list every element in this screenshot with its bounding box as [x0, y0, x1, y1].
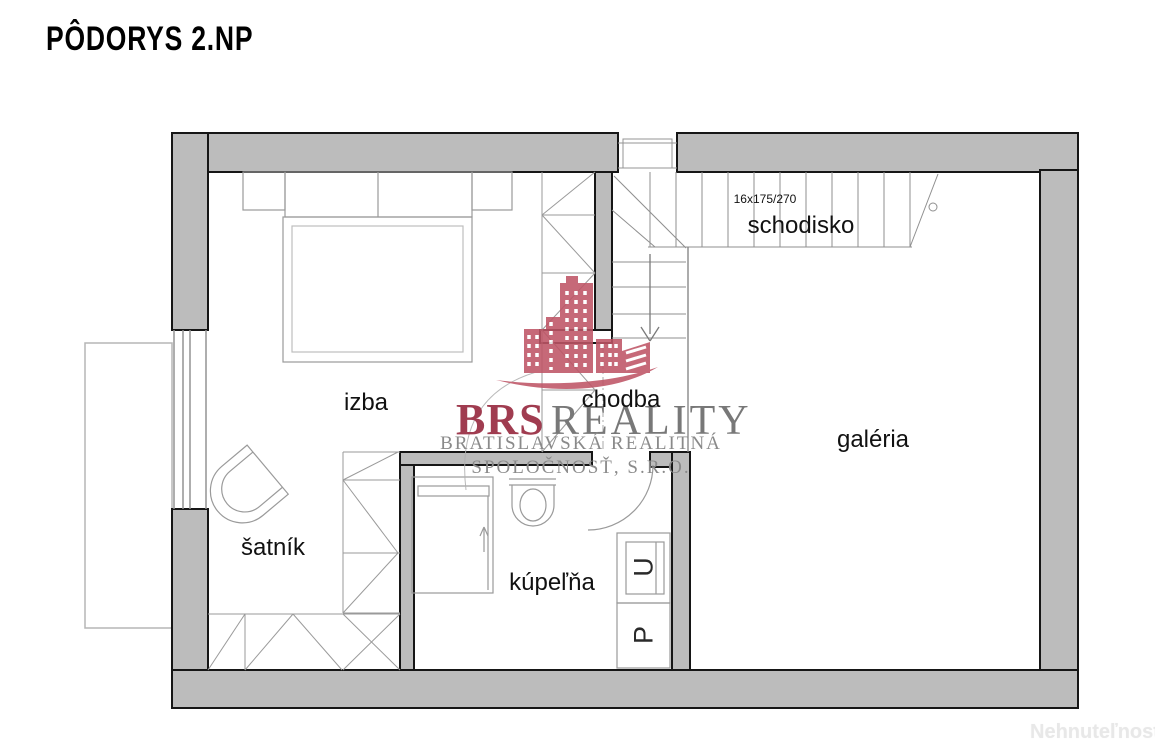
top-window: [618, 139, 677, 168]
stair-direction-arrow: [641, 254, 659, 341]
brs-logo-subtitle-line1: BRATISLAVSKÁ REALITNÁ: [440, 433, 722, 455]
room-label-chodba: chodba: [582, 386, 661, 414]
appliance-boxes: [617, 533, 670, 668]
bed: [243, 172, 512, 362]
closet-chair: [197, 445, 288, 536]
left-window: [174, 330, 206, 509]
page-title: PÔDORYS 2.NP: [46, 20, 253, 59]
room-label-galeria: galéria: [837, 426, 909, 454]
room-label-kupelna: kúpeľňa: [509, 569, 595, 597]
brs-logo-subtitle-line2: SPOLOČNOSŤ, S.R.O.: [471, 457, 690, 479]
stair-spec-label: 16x175/270: [734, 192, 797, 206]
floorplan-geometry: [0, 0, 1155, 755]
appliance-label-p: P: [629, 626, 660, 644]
balcony-outline: [85, 343, 172, 628]
site-watermark: Nehnuteľnosti: [1030, 721, 1155, 744]
floorplan-canvas: BRS REALITY BRATISLAVSKÁ REALITNÁ SPOLOČ…: [0, 0, 1155, 755]
toilet: [509, 479, 556, 526]
room-label-satnik: šatník: [241, 534, 305, 562]
shower: [412, 477, 493, 593]
appliance-label-u: U: [629, 557, 660, 577]
room-label-schodisko: schodisko: [748, 212, 855, 240]
room-label-izba: izba: [344, 389, 388, 417]
